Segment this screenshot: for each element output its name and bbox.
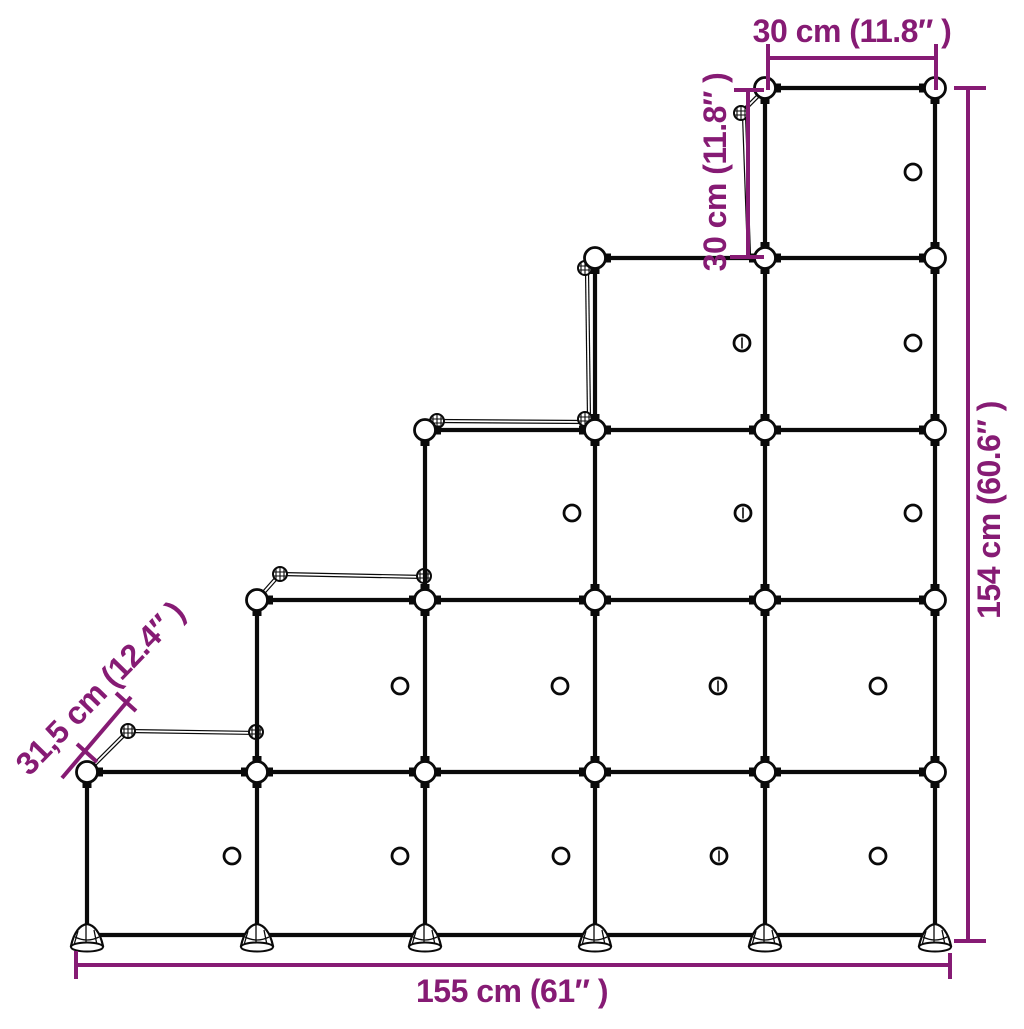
- foot: [409, 924, 441, 952]
- foot: [241, 924, 273, 952]
- ball: [925, 248, 946, 269]
- ball: [77, 762, 98, 783]
- corner-ball: [409, 584, 441, 616]
- knob: [564, 505, 580, 521]
- knob: [905, 335, 921, 351]
- foot-base: [919, 943, 951, 952]
- door-knob: [564, 505, 580, 521]
- label-depth: 31,5 cm (12.4″ ): [9, 594, 192, 782]
- label-total-width: 155 cm (61″ ): [416, 973, 608, 1009]
- back-edge: [437, 422, 587, 423]
- foot-base: [409, 943, 441, 952]
- back-edge: [280, 573, 426, 576]
- door-knob: [735, 505, 751, 521]
- knob: [392, 678, 408, 694]
- foot: [919, 924, 951, 952]
- knob: [870, 678, 886, 694]
- knob: [870, 848, 886, 864]
- dimension-labels: 30 cm (11.8″ ) 30 cm (11.8″ ) 154 cm (60…: [9, 13, 1007, 1009]
- clip-hatch: [274, 568, 286, 581]
- door-knob: [905, 505, 921, 521]
- ball: [415, 762, 436, 783]
- dimension-lines: [62, 44, 986, 979]
- corner-ball: [749, 414, 781, 446]
- door-knob: [905, 335, 921, 351]
- back-edge: [586, 270, 588, 418]
- door-knob: [734, 335, 750, 351]
- corner-ball: [919, 78, 946, 105]
- door-knobs: [224, 164, 921, 864]
- door-knob: [392, 848, 408, 864]
- door-knob: [710, 678, 726, 694]
- door-knob: [711, 848, 727, 864]
- corner-ball: [409, 756, 441, 788]
- ball: [247, 590, 268, 611]
- feet: [71, 924, 951, 952]
- corner-ball: [579, 756, 611, 788]
- door-knob: [552, 678, 568, 694]
- foot: [71, 924, 103, 952]
- foot: [749, 924, 781, 952]
- ball: [585, 248, 606, 269]
- ball: [925, 762, 946, 783]
- door-knob: [905, 164, 921, 180]
- ball: [755, 762, 776, 783]
- knob: [552, 678, 568, 694]
- clip-hatch: [735, 107, 747, 120]
- ball: [247, 762, 268, 783]
- ball: [925, 590, 946, 611]
- foot-base: [749, 943, 781, 952]
- clip-connector: [734, 106, 748, 120]
- corner-ball: [919, 414, 946, 446]
- knob: [553, 848, 569, 864]
- door-knob: [224, 848, 240, 864]
- foot: [579, 924, 611, 952]
- corner-ball: [579, 584, 611, 616]
- diagram-stage: 30 cm (11.8″ ) 30 cm (11.8″ ) 154 cm (60…: [0, 0, 1024, 1024]
- corner-clips: [121, 106, 748, 739]
- corner-balls: [77, 78, 946, 789]
- corner-ball: [919, 242, 946, 274]
- clip-hatch: [122, 725, 134, 738]
- foot-base: [241, 943, 273, 952]
- door-knob: [553, 848, 569, 864]
- corner-ball: [241, 756, 273, 788]
- door-knob: [870, 678, 886, 694]
- corner-ball: [749, 756, 781, 788]
- foot-base: [71, 943, 103, 952]
- knob: [905, 505, 921, 521]
- back-edge: [437, 420, 587, 421]
- corner-ball: [77, 762, 104, 789]
- front-frame: [87, 88, 935, 935]
- ball: [755, 420, 776, 441]
- knob: [905, 164, 921, 180]
- ball: [585, 420, 606, 441]
- door-knob: [870, 848, 886, 864]
- label-cube-height: 30 cm (11.8″ ): [697, 73, 733, 272]
- back-edge: [280, 575, 426, 578]
- clip-connector: [273, 567, 287, 581]
- knob: [224, 848, 240, 864]
- ball: [755, 590, 776, 611]
- label-cube-width: 30 cm (11.8″ ): [753, 13, 952, 49]
- label-total-height: 154 cm (60.6″ ): [971, 401, 1007, 619]
- foot-base: [579, 943, 611, 952]
- cube-shelf-dimension-diagram: 30 cm (11.8″ ) 30 cm (11.8″ ) 154 cm (60…: [0, 0, 1024, 1024]
- ball: [585, 762, 606, 783]
- ball: [415, 590, 436, 611]
- corner-ball: [749, 584, 781, 616]
- ball: [925, 420, 946, 441]
- clip-connector: [121, 724, 135, 738]
- corner-ball: [247, 590, 274, 617]
- back-edge: [128, 730, 258, 732]
- back-edge: [128, 732, 258, 734]
- corner-ball: [919, 584, 946, 616]
- door-knob: [392, 678, 408, 694]
- back-edge: [588, 270, 590, 418]
- knob: [392, 848, 408, 864]
- ball: [415, 420, 436, 441]
- corner-ball: [919, 756, 946, 788]
- ball: [585, 590, 606, 611]
